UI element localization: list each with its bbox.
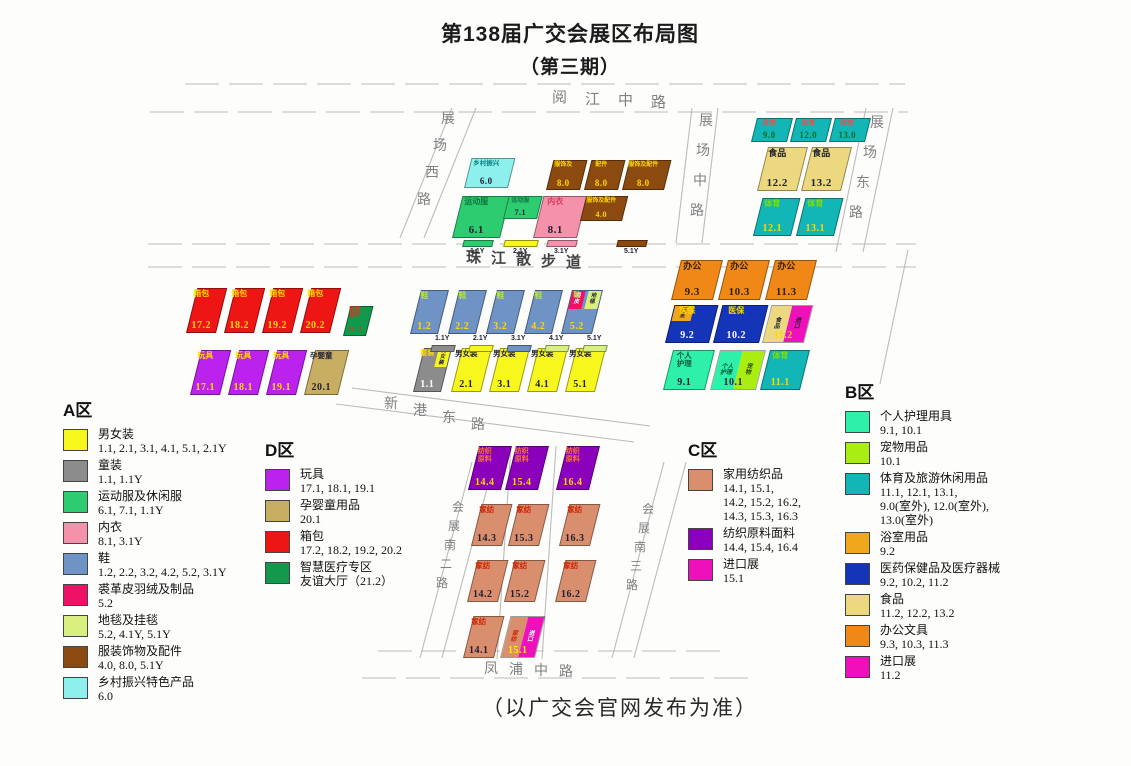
hall-label: 孕婴童 bbox=[310, 352, 333, 360]
legend-text-b-4: 医药保健品及医疗器械9.2, 10.2, 11.2 bbox=[880, 561, 1000, 589]
legend-label: 进口展 bbox=[723, 557, 759, 571]
hall-label: 纺织 原料 bbox=[478, 448, 492, 463]
hall-content-9-3: 办公9.3 bbox=[672, 261, 712, 299]
road-label-zhanchang-dong: 展 bbox=[870, 112, 884, 132]
hall-block-7-1: 运动服7.1 bbox=[503, 196, 543, 219]
hall-number: 15.3 bbox=[514, 533, 534, 544]
road-label-huizhan-nan-3: 三 bbox=[630, 557, 642, 574]
legend-values: 5.2 bbox=[98, 596, 194, 610]
legend-values: 14.4, 15.4, 16.4 bbox=[723, 540, 798, 554]
hall-number: 3.2 bbox=[493, 321, 507, 332]
hall-label: 服饰及 bbox=[554, 162, 572, 168]
legend-label: 服装饰物及配件 bbox=[98, 644, 182, 658]
road-label-zhanchang-zhong: 中 bbox=[693, 170, 707, 190]
hall-content-8-0c: 服饰及配件8.0 bbox=[623, 161, 663, 189]
hall-content-7-1: 运动服7.1 bbox=[504, 197, 536, 218]
hall-label: 个人 护理 bbox=[677, 352, 692, 368]
hall-number: 11.3 bbox=[776, 286, 797, 298]
legend-values: 4.0, 8.0, 5.1Y bbox=[98, 658, 182, 672]
legend-text-b-0: 个人护理用具9.1, 10.1 bbox=[880, 409, 952, 437]
hall-label: 运动服 bbox=[511, 198, 529, 204]
road-label-fengpu: 路 bbox=[559, 661, 573, 681]
legend-text-d-2: 箱包17.2, 18.2, 19.2, 20.2 bbox=[300, 529, 402, 557]
hall-number: 14.4 bbox=[475, 477, 495, 488]
road-label-yuejiang: 路 bbox=[651, 91, 666, 112]
hall-label: 家纺 bbox=[512, 562, 527, 570]
legend-text-a-3: 内衣8.1, 3.1Y bbox=[98, 520, 143, 548]
hall-number: 10.2 bbox=[726, 330, 746, 341]
legend-item-d-2: 箱包17.2, 18.2, 19.2, 20.2 bbox=[265, 529, 475, 557]
legend-swatch-b-3 bbox=[845, 532, 870, 554]
hall-number: 15.2 bbox=[510, 589, 530, 600]
legend-text-a-4: 鞋1.2, 2.2, 3.2, 4.2, 5.2, 3.1Y bbox=[98, 551, 227, 579]
hall-number: 12.1 bbox=[762, 223, 782, 234]
legend-label: 家用纺织品 bbox=[723, 467, 801, 481]
strip-label-south-1-1Y: 1.1Y bbox=[435, 335, 449, 342]
hall-label: 智慧 医疗 bbox=[349, 308, 360, 320]
legend-label: 浴室用品 bbox=[880, 530, 928, 544]
legend-values: 10.1 bbox=[880, 454, 928, 468]
hall-number: 17.2 bbox=[191, 320, 211, 331]
legend-swatch-a-3 bbox=[63, 522, 88, 544]
legend-item-b-6: 办公文具9.3, 10.3, 11.3 bbox=[845, 623, 1055, 651]
hall-label: 箱包 bbox=[193, 290, 209, 299]
hall-number: 9.3 bbox=[685, 286, 700, 298]
strip-south-2-1Y bbox=[468, 345, 494, 352]
hall-label: 服饰及配件 bbox=[628, 162, 658, 168]
legend-label: 办公文具 bbox=[880, 623, 949, 637]
road-label-huizhan-nan-3: 会 bbox=[642, 500, 654, 517]
legend-text-a-2: 运动服及休闲服6.1, 7.1, 1.1Y bbox=[98, 489, 182, 517]
legend-label: 男女装 bbox=[98, 427, 227, 441]
legend-item-b-4: 医药保健品及医疗器械9.2, 10.2, 11.2 bbox=[845, 561, 1055, 589]
legend-label: 体育及旅游休闲用品 bbox=[880, 471, 989, 485]
hall-content-6-1: 运动服6.1 bbox=[453, 197, 499, 237]
legend-item-d-1: 孕婴童用品20.1 bbox=[265, 498, 475, 526]
legend-text-c-0: 家用纺织品14.1, 15.1,14.2, 15.2, 16.2,14.3, 1… bbox=[723, 467, 801, 523]
legend-swatch-b-0 bbox=[845, 411, 870, 433]
legend-text-b-2: 体育及旅游休闲用品11.1, 12.1, 13.1,9.0(室外), 12.0(… bbox=[880, 471, 989, 527]
hall-content-11-3: 办公11.3 bbox=[766, 261, 806, 299]
hall-block-9-0: 体育9.0 bbox=[751, 118, 793, 142]
hall-label: 鞋 bbox=[534, 292, 542, 301]
canton-fair-layout-map: 第138届广交会展区布局图 （第三期） 阅江中路展场西路展场中路展场东路珠江散步… bbox=[0, 0, 1131, 766]
hall-number: 5.1 bbox=[573, 379, 587, 390]
strip-south-4-1Y bbox=[544, 345, 570, 352]
hall-number: 4.0 bbox=[595, 210, 607, 219]
hall-label: 体育 bbox=[772, 352, 788, 361]
road-label-zhanchang-dong: 东 bbox=[856, 172, 870, 192]
legend-values: 11.2 bbox=[880, 668, 916, 682]
legend-label: 箱包 bbox=[300, 529, 402, 543]
hall-label: 体育 bbox=[762, 120, 776, 128]
hall-block-10-2: 医保10.2 bbox=[713, 305, 768, 343]
legend-label: 纺织原料面料 bbox=[723, 526, 798, 540]
road-label-xingang-dong: 新 bbox=[384, 393, 398, 413]
legend-label: 鞋 bbox=[98, 551, 227, 565]
legend-values: 9.3, 10.3, 11.3 bbox=[880, 637, 949, 651]
strip-label-south-4-1Y: 4.1Y bbox=[549, 335, 563, 342]
legend-swatch-d-2 bbox=[265, 531, 290, 553]
legend-values: 11.2, 12.2, 13.2 bbox=[880, 606, 955, 620]
legend-swatch-a-8 bbox=[63, 677, 88, 699]
hall-number: 16.3 bbox=[565, 533, 585, 544]
legend-item-b-5: 食品11.2, 12.2, 13.2 bbox=[845, 592, 1055, 620]
legend-item-a-5: 裘革皮羽绒及制品5.2 bbox=[63, 582, 273, 610]
legend-values: 14.3, 15.3, 16.3 bbox=[723, 509, 801, 523]
legend-text-b-5: 食品11.2, 12.2, 13.2 bbox=[880, 592, 955, 620]
hall-label: 箱包 bbox=[307, 290, 323, 299]
legend-values: 13.0(室外) bbox=[880, 513, 989, 527]
legend-item-a-1: 童装1.1, 1.1Y bbox=[63, 458, 273, 486]
hall-label: 箱包 bbox=[231, 290, 247, 299]
strip-label-south-5-1Y: 5.1Y bbox=[587, 335, 601, 342]
hall-content-10-3: 办公10.3 bbox=[719, 261, 759, 299]
hall-content-8-1: 内衣8.1 bbox=[534, 197, 576, 237]
legend-text-b-3: 浴室用品9.2 bbox=[880, 530, 928, 558]
hall-label: 家纺 bbox=[567, 506, 582, 514]
legend-d: D区玩具17.1, 18.1, 19.1孕婴童用品20.1箱包17.2, 18.… bbox=[265, 436, 475, 591]
hall-number: 12.0 bbox=[799, 130, 817, 140]
hall-label: 玩具 bbox=[197, 352, 213, 361]
legend-values: 9.2 bbox=[880, 544, 928, 558]
road-label-yuejiang: 阅 bbox=[552, 86, 567, 107]
hall-number: 15.4 bbox=[512, 477, 532, 488]
road-label-fengpu: 凤 bbox=[484, 658, 498, 678]
hall-number: 8.0 bbox=[557, 178, 570, 188]
road-label-huizhan-nan-3: 南 bbox=[634, 538, 646, 555]
road-label-huizhan-nan-3: 路 bbox=[626, 576, 638, 593]
title-line2: （第三期） bbox=[330, 52, 810, 79]
hall-number: 6.1 bbox=[469, 224, 484, 236]
hall-label: 医保 bbox=[728, 307, 744, 316]
hall-label: 内衣 bbox=[547, 198, 563, 207]
hall-wedge-9-2: 浴室 bbox=[671, 306, 694, 321]
legend-values: 友谊大厅（21.2） bbox=[300, 574, 393, 588]
road-label-zhanchang-zhong: 场 bbox=[696, 140, 710, 160]
legend-item-b-7: 进口展11.2 bbox=[845, 654, 1055, 682]
hall-label: 体育 bbox=[764, 200, 780, 209]
hall-label: 家纺 bbox=[479, 506, 494, 514]
strip-label-south-2-1Y: 2.1Y bbox=[473, 335, 487, 342]
legend-text-a-6: 地毯及挂毯5.2, 4.1Y, 5.1Y bbox=[98, 613, 171, 641]
legend-text-b-1: 宠物用品10.1 bbox=[880, 440, 928, 468]
hall-number: 20.2 bbox=[305, 320, 325, 331]
legend-swatch-c-2 bbox=[688, 559, 713, 581]
road-label-yuejiang: 中 bbox=[618, 89, 633, 110]
hall-label: 服饰及配件 bbox=[586, 198, 616, 204]
legend-swatch-b-6 bbox=[845, 625, 870, 647]
map-title: 第138届广交会展区布局图 （第三期） bbox=[330, 18, 810, 79]
legend-swatch-d-3 bbox=[265, 562, 290, 584]
hall-content-6-0: 乡村振兴6.0 bbox=[465, 159, 507, 187]
hall-number: 18.2 bbox=[229, 320, 249, 331]
legend-values: 8.1, 3.1Y bbox=[98, 534, 143, 548]
strip-north-5-1Y bbox=[616, 240, 648, 247]
legend-swatch-a-2 bbox=[63, 491, 88, 513]
legend-values: 14.1, 15.1, bbox=[723, 481, 801, 495]
hall-label: 纺织 原料 bbox=[515, 448, 529, 463]
hall-wedge-5-2: 裘皮 bbox=[568, 291, 586, 309]
road-label-xingang-dong: 路 bbox=[471, 414, 485, 434]
legend-title-a: A区 bbox=[63, 396, 273, 421]
road-label-fengpu: 浦 bbox=[509, 659, 523, 679]
legend-values: 9.0(室外), 12.0(室外), bbox=[880, 499, 989, 513]
hall-number: 21.2 bbox=[348, 326, 362, 334]
legend-label: 乡村振兴特色产品 bbox=[98, 675, 194, 689]
legend-item-b-1: 宠物用品10.1 bbox=[845, 440, 1055, 468]
legend-item-a-0: 男女装1.1, 2.1, 3.1, 4.1, 5.1, 2.1Y bbox=[63, 427, 273, 455]
hall-number: 13.0 bbox=[838, 130, 856, 140]
hall-number: 8.0 bbox=[595, 178, 608, 188]
hall-label: 乡村振兴 bbox=[473, 160, 499, 167]
hall-label: 箱包 bbox=[269, 290, 285, 299]
legend-a: A区男女装1.1, 2.1, 3.1, 4.1, 5.1, 2.1Y童装1.1,… bbox=[63, 396, 273, 706]
hall-label: 家纺 bbox=[516, 506, 531, 514]
hall-content-13-1: 体育13.1 bbox=[797, 199, 833, 235]
hall-number: 11.1 bbox=[771, 377, 790, 388]
hall-label: 玩具 bbox=[273, 352, 289, 361]
hall-content-13-0: 体育13.0 bbox=[830, 119, 864, 141]
legend-item-a-2: 运动服及休闲服6.1, 7.1, 1.1Y bbox=[63, 489, 273, 517]
legend-swatch-b-1 bbox=[845, 442, 870, 464]
legend-label: 运动服及休闲服 bbox=[98, 489, 182, 503]
legend-title-b: B区 bbox=[845, 378, 1055, 403]
road-label-xingang-dong: 港 bbox=[413, 400, 427, 420]
strip-label-north-2-1Y: 2.1Y bbox=[513, 248, 527, 255]
legend-item-a-8: 乡村振兴特色产品6.0 bbox=[63, 675, 273, 703]
legend-label: 宠物用品 bbox=[880, 440, 928, 454]
legend-item-b-0: 个人护理用具9.1, 10.1 bbox=[845, 409, 1055, 437]
hall-label: 体育 bbox=[840, 120, 854, 128]
hall-number: 9.1 bbox=[677, 377, 691, 388]
legend-text-a-1: 童装1.1, 1.1Y bbox=[98, 458, 143, 486]
hall-content-8-0b: 配件8.0 bbox=[585, 161, 617, 189]
hall-number: 6.0 bbox=[480, 176, 493, 186]
hall-number: 9.2 bbox=[680, 330, 694, 341]
hall-label: 食品 bbox=[768, 149, 786, 159]
hall-number: 8.0 bbox=[637, 178, 650, 188]
legend-label: 智慧医疗专区 bbox=[300, 560, 393, 574]
legend-label: 食品 bbox=[880, 592, 955, 606]
legend-values: 14.2, 15.2, 16.2, bbox=[723, 495, 801, 509]
strip-south-5-1Y bbox=[582, 345, 608, 352]
strip-north-1-1Y bbox=[462, 240, 494, 247]
hall-number: 17.1 bbox=[195, 382, 215, 393]
hall-label: 食品 bbox=[812, 149, 830, 159]
hall-number: 2.2 bbox=[455, 321, 469, 332]
road-label-yuejiang: 江 bbox=[585, 88, 600, 109]
hall-number: 12.2 bbox=[767, 177, 788, 189]
legend-swatch-c-0 bbox=[688, 469, 713, 491]
hall-number: 16.2 bbox=[561, 589, 581, 600]
hall-number: 2.1 bbox=[459, 379, 473, 390]
road-label-zhanchang-xi: 场 bbox=[433, 135, 447, 155]
road-label-huizhan-nan-3: 展 bbox=[638, 519, 650, 536]
road-label-zhanchang-dong: 场 bbox=[863, 142, 877, 162]
legend-values: 6.0 bbox=[98, 689, 194, 703]
strip-south-1-1Y bbox=[430, 345, 456, 352]
hall-number: 7.1 bbox=[514, 208, 526, 217]
strip-label-north-1-1Y: 1.1Y bbox=[470, 248, 484, 255]
hall-label: 鞋 bbox=[458, 292, 466, 301]
legend-item-a-7: 服装饰物及配件4.0, 8.0, 5.1Y bbox=[63, 644, 273, 672]
legend-text-b-6: 办公文具9.3, 10.3, 11.3 bbox=[880, 623, 949, 651]
hall-number: 4.2 bbox=[531, 321, 545, 332]
legend-values: 6.1, 7.1, 1.1Y bbox=[98, 503, 182, 517]
legend-text-d-1: 孕婴童用品20.1 bbox=[300, 498, 360, 526]
legend-item-a-4: 鞋1.2, 2.2, 3.2, 4.2, 5.2, 3.1Y bbox=[63, 551, 273, 579]
road-label-zhanchang-zhong: 路 bbox=[690, 200, 704, 220]
legend-values: 5.2, 4.1Y, 5.1Y bbox=[98, 627, 171, 641]
hall-number: 9.0 bbox=[763, 130, 776, 140]
legend-values: 11.1, 12.1, 13.1, bbox=[880, 485, 989, 499]
strip-north-2-1Y bbox=[503, 240, 539, 247]
legend-label: 孕婴童用品 bbox=[300, 498, 360, 512]
legend-text-a-5: 裘革皮羽绒及制品5.2 bbox=[98, 582, 194, 610]
hall-block-8-0c: 服饰及配件8.0 bbox=[622, 160, 671, 190]
legend-b: B区个人护理用具9.1, 10.1宠物用品10.1体育及旅游休闲用品11.1, … bbox=[845, 378, 1055, 685]
hall-number: 10.3 bbox=[729, 286, 750, 298]
legend-text-d-3: 智慧医疗专区友谊大厅（21.2） bbox=[300, 560, 393, 588]
hall-content-12-0: 体育12.0 bbox=[791, 119, 825, 141]
hall-content-9-0: 体育9.0 bbox=[752, 119, 786, 141]
legend-text-c-2: 进口展15.1 bbox=[723, 557, 759, 585]
hall-label: 体育 bbox=[801, 120, 815, 128]
legend-text-c-1: 纺织原料面料14.4, 15.4, 16.4 bbox=[723, 526, 798, 554]
legend-values: 17.2, 18.2, 19.2, 20.2 bbox=[300, 543, 402, 557]
hall-number: 20.1 bbox=[311, 382, 331, 393]
hall-label: 鞋 bbox=[420, 292, 428, 301]
hall-label: 运动服 bbox=[464, 198, 488, 207]
legend-swatch-b-2 bbox=[845, 473, 870, 495]
legend-item-d-0: 玩具17.1, 18.1, 19.1 bbox=[265, 467, 475, 495]
hall-label: 办公 bbox=[777, 262, 795, 272]
legend-text-a-0: 男女装1.1, 2.1, 3.1, 4.1, 5.1, 2.1Y bbox=[98, 427, 227, 455]
hall-label: 办公 bbox=[683, 262, 701, 272]
hall-content-8-0a: 服饰及8.0 bbox=[547, 161, 579, 189]
hall-label: 办公 bbox=[730, 262, 748, 272]
strip-south-3-1Y bbox=[506, 345, 532, 352]
hall-label: 纺织 原料 bbox=[566, 448, 580, 463]
legend-values: 1.1, 1.1Y bbox=[98, 472, 143, 486]
road-label-zhanchang-xi: 路 bbox=[417, 189, 431, 209]
hall-number: 18.1 bbox=[233, 382, 253, 393]
legend-values: 17.1, 18.1, 19.1 bbox=[300, 481, 375, 495]
hall-number: 5.2 bbox=[570, 321, 584, 332]
legend-item-a-6: 地毯及挂毯5.2, 4.1Y, 5.1Y bbox=[63, 613, 273, 641]
legend-text-d-0: 玩具17.1, 18.1, 19.1 bbox=[300, 467, 375, 495]
legend-values: 1.1, 2.1, 3.1, 4.1, 5.1, 2.1Y bbox=[98, 441, 227, 455]
road-label-zhanchang-zhong: 展 bbox=[699, 110, 713, 130]
hall-number: 14.3 bbox=[477, 533, 497, 544]
hall-number: 8.1 bbox=[548, 224, 563, 236]
hall-block-13-0: 体育13.0 bbox=[829, 118, 871, 142]
legend-swatch-a-4 bbox=[63, 553, 88, 575]
hall-content-9-1: 个人 护理9.1 bbox=[664, 351, 704, 389]
hall-number: 14.2 bbox=[473, 589, 493, 600]
legend-label: 童装 bbox=[98, 458, 143, 472]
legend-swatch-d-0 bbox=[265, 469, 290, 491]
legend-title-d: D区 bbox=[265, 436, 475, 461]
legend-values: 9.2, 10.2, 11.2 bbox=[880, 575, 1000, 589]
hall-label: 配件 bbox=[595, 162, 607, 168]
legend-swatch-b-4 bbox=[845, 563, 870, 585]
legend-values: 9.1, 10.1 bbox=[880, 423, 952, 437]
road-label-fengpu: 中 bbox=[534, 660, 548, 680]
legend-swatch-b-7 bbox=[845, 656, 870, 678]
hall-number: 19.2 bbox=[267, 320, 287, 331]
hall-number: 1.1 bbox=[420, 379, 434, 390]
strip-north-3-1Y bbox=[546, 240, 578, 247]
road-label-zhanchang-dong: 路 bbox=[849, 202, 863, 222]
legend-swatch-a-7 bbox=[63, 646, 88, 668]
hall-content-4-0: 服饰及配件4.0 bbox=[581, 197, 621, 220]
road-label-xingang-dong: 东 bbox=[442, 407, 456, 427]
road-label-zhujiang-walk: 江 bbox=[491, 247, 506, 268]
hall-content-10-2: 医保10.2 bbox=[714, 306, 758, 342]
legend-swatch-a-5 bbox=[63, 584, 88, 606]
title-line1: 第138届广交会展区布局图 bbox=[330, 18, 810, 48]
road-label-zhanchang-xi: 展 bbox=[441, 108, 455, 128]
strip-label-north-3-1Y: 3.1Y bbox=[554, 248, 568, 255]
hall-block-4-0: 服饰及配件4.0 bbox=[580, 196, 628, 221]
legend-swatch-b-5 bbox=[845, 594, 870, 616]
legend-swatch-a-6 bbox=[63, 615, 88, 637]
legend-swatch-a-0 bbox=[63, 429, 88, 451]
legend-swatch-d-1 bbox=[265, 500, 290, 522]
legend-text-a-7: 服装饰物及配件4.0, 8.0, 5.1Y bbox=[98, 644, 182, 672]
hall-number: 13.2 bbox=[811, 177, 832, 189]
legend-label: 医药保健品及医疗器械 bbox=[880, 561, 1000, 575]
hall-number: 3.1 bbox=[497, 379, 511, 390]
hall-content-12-1: 体育12.1 bbox=[754, 199, 790, 235]
legend-label: 玩具 bbox=[300, 467, 375, 481]
hall-label: 家纺 bbox=[563, 562, 578, 570]
legend-label: 裘革皮羽绒及制品 bbox=[98, 582, 194, 596]
legend-text-b-7: 进口展11.2 bbox=[880, 654, 916, 682]
legend-label: 地毯及挂毯 bbox=[98, 613, 171, 627]
road-label-zhanchang-xi: 西 bbox=[425, 162, 439, 182]
hall-label: 家纺 bbox=[475, 562, 490, 570]
hall-number: 4.1 bbox=[535, 379, 549, 390]
hall-label: 玩具 bbox=[235, 352, 251, 361]
legend-label: 进口展 bbox=[880, 654, 916, 668]
strip-label-south-3-1Y: 3.1Y bbox=[511, 335, 525, 342]
legend-item-a-3: 内衣8.1, 3.1Y bbox=[63, 520, 273, 548]
hall-label: 家纺 bbox=[471, 618, 486, 626]
hall-number: 1.2 bbox=[417, 321, 431, 332]
legend-swatch-c-1 bbox=[688, 528, 713, 550]
legend-item-b-2: 体育及旅游休闲用品11.1, 12.1, 13.1,9.0(室外), 12.0(… bbox=[845, 471, 1055, 527]
legend-label: 内衣 bbox=[98, 520, 143, 534]
hall-number: 16.4 bbox=[563, 477, 583, 488]
hall-label: 体育 bbox=[807, 200, 823, 209]
hall-number: 13.1 bbox=[805, 223, 825, 234]
legend-item-d-3: 智慧医疗专区友谊大厅（21.2） bbox=[265, 560, 475, 588]
legend-values: 15.1 bbox=[723, 571, 759, 585]
hall-label: 鞋 bbox=[496, 292, 504, 301]
legend-item-b-3: 浴室用品9.2 bbox=[845, 530, 1055, 558]
legend-values: 1.2, 2.2, 3.2, 4.2, 5.2, 3.1Y bbox=[98, 565, 227, 579]
legend-values: 20.1 bbox=[300, 512, 360, 526]
footer-note: （以广交会官网发布为准） bbox=[340, 692, 900, 722]
hall-block-12-0: 体育12.0 bbox=[790, 118, 832, 142]
legend-label: 个人护理用具 bbox=[880, 409, 952, 423]
strip-label-north-5-1Y: 5.1Y bbox=[624, 248, 638, 255]
hall-block-6-0: 乡村振兴6.0 bbox=[464, 158, 515, 188]
legend-text-a-8: 乡村振兴特色产品6.0 bbox=[98, 675, 194, 703]
